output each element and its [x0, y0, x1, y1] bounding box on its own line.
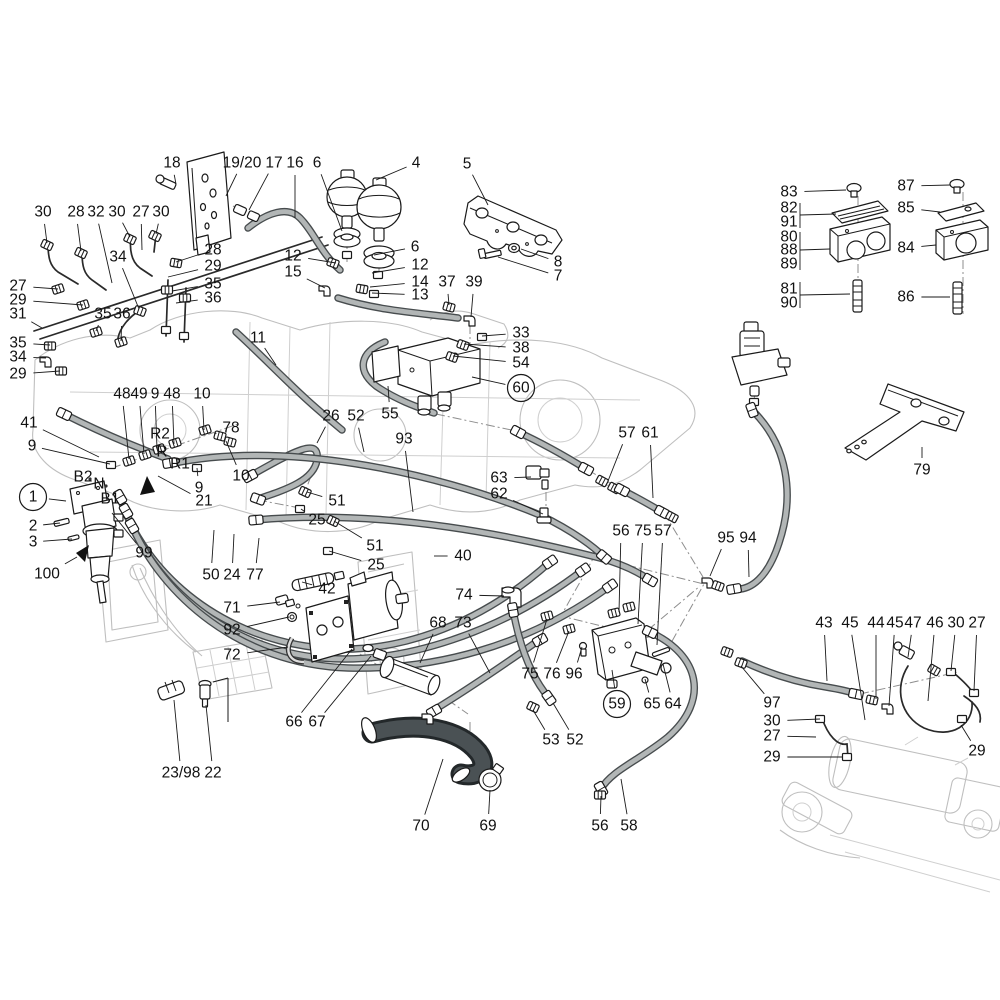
svg-text:35: 35 [94, 306, 111, 323]
callout-46: 46 [926, 615, 943, 702]
svg-text:R1: R1 [170, 456, 190, 473]
svg-text:25: 25 [367, 557, 384, 574]
callout-R: R [156, 444, 167, 461]
svg-text:57: 57 [618, 425, 635, 442]
callout-43: 43 [815, 615, 832, 682]
svg-text:77: 77 [246, 567, 263, 584]
fittings [40, 230, 979, 799]
svg-text:R2: R2 [150, 426, 170, 443]
svg-text:46: 46 [926, 615, 943, 632]
callout-94: 94 [739, 530, 757, 578]
fittings-17 [233, 204, 260, 222]
svg-text:28: 28 [67, 204, 84, 221]
svg-text:3: 3 [29, 534, 38, 551]
svg-text:65: 65 [643, 696, 660, 713]
svg-text:B2: B2 [74, 469, 93, 486]
svg-text:85: 85 [897, 200, 914, 217]
svg-text:86: 86 [897, 289, 914, 306]
callout-48: 48 [113, 386, 130, 460]
callout-4: 4 [376, 155, 421, 181]
callout-100: 100 [34, 557, 77, 583]
callout-30: 30 [108, 204, 130, 238]
svg-text:51: 51 [366, 538, 383, 555]
svg-text:57: 57 [654, 523, 671, 540]
svg-text:24: 24 [223, 567, 241, 584]
svg-text:49: 49 [130, 386, 147, 403]
svg-text:63: 63 [490, 470, 507, 487]
callout-71: 71 [223, 600, 280, 617]
svg-text:7: 7 [554, 268, 563, 285]
fitting-33 [478, 334, 487, 341]
svg-text:10: 10 [193, 386, 211, 403]
svg-text:39: 39 [465, 274, 482, 291]
hose-94 [734, 410, 787, 589]
callout-R2: R2 [150, 426, 170, 443]
svg-text:45: 45 [886, 615, 903, 632]
callout-56: 56 [591, 796, 608, 835]
svg-text:1: 1 [29, 489, 38, 506]
callout-27: 27 [763, 728, 816, 745]
callout-10: 10 [226, 441, 250, 485]
pin-3 [68, 535, 80, 542]
svg-text:90: 90 [780, 295, 798, 312]
svg-text:99: 99 [135, 545, 152, 562]
svg-text:37: 37 [438, 274, 455, 291]
svg-text:62: 62 [490, 486, 507, 503]
label-bracket-81-90 [800, 282, 850, 308]
flange-nut-6a [334, 228, 360, 247]
callout-65: 65 [643, 679, 660, 713]
svg-text:52: 52 [566, 732, 583, 749]
bleed-screw-96 [580, 643, 587, 657]
svg-text:27: 27 [968, 615, 985, 632]
svg-text:9: 9 [151, 386, 160, 403]
sensor-47 [894, 642, 915, 660]
nut-12a [343, 252, 352, 259]
svg-text:6: 6 [313, 155, 322, 172]
direction-arrow-lower [76, 545, 89, 562]
callout-85: 85 [897, 200, 940, 217]
svg-text:75: 75 [634, 523, 651, 540]
t-plate-79 [845, 384, 964, 460]
svg-text:12: 12 [411, 257, 428, 274]
callout-89: 89 [780, 256, 797, 273]
svg-text:29: 29 [204, 258, 221, 275]
svg-text:100: 100 [34, 566, 60, 583]
svg-text:42: 42 [318, 581, 335, 598]
bolt-18 [156, 175, 177, 190]
callout-7: 7 [498, 257, 562, 285]
callout-90: 90 [780, 295, 798, 312]
svg-text:51: 51 [328, 493, 345, 510]
svg-text:15: 15 [284, 264, 301, 281]
svg-text:96: 96 [565, 666, 582, 683]
callout-83: 83 [780, 184, 846, 201]
parts-diagram-page: 1819/20171664587302832302730342829353627… [0, 0, 1000, 1000]
callout-22: 22 [204, 705, 221, 782]
label-bracket-82-91 [800, 203, 836, 228]
svg-text:55: 55 [381, 406, 398, 423]
svg-text:76: 76 [543, 666, 560, 683]
pin-2 [54, 518, 70, 526]
svg-text:29: 29 [763, 749, 780, 766]
svg-text:4: 4 [412, 155, 421, 172]
callout-15: 15 [284, 264, 325, 289]
svg-text:94: 94 [739, 530, 757, 547]
svg-text:84: 84 [897, 240, 915, 257]
callout-R1: R1 [170, 456, 190, 473]
svg-text:2: 2 [29, 518, 38, 535]
svg-text:22: 22 [204, 765, 221, 782]
svg-text:17: 17 [265, 155, 282, 172]
svg-text:67: 67 [308, 714, 325, 731]
stud-86 [953, 282, 962, 314]
svg-text:52: 52 [347, 408, 364, 425]
svg-text:B1: B1 [101, 491, 120, 508]
callout-57: 57 [608, 425, 636, 482]
svg-text:87: 87 [897, 178, 914, 195]
rear-axle-outline [780, 734, 1000, 892]
callout-53: 53 [533, 710, 560, 749]
callout-29: 29 [763, 749, 843, 766]
callout-31: 31 [9, 306, 42, 329]
svg-text:30: 30 [34, 204, 52, 221]
flange-nut-6b [364, 246, 394, 268]
callout-73: 73 [454, 615, 490, 674]
svg-text:30: 30 [152, 204, 170, 221]
svg-text:31: 31 [9, 306, 26, 323]
callout-29: 29 [961, 725, 986, 760]
suction-hose-70 [359, 716, 483, 785]
washer-8 [509, 244, 520, 253]
callout-9: 9 [28, 438, 110, 465]
svg-text:97: 97 [763, 695, 780, 712]
callout-51: 51 [334, 521, 384, 555]
nut-13 [370, 291, 379, 298]
svg-text:53: 53 [542, 732, 559, 749]
svg-text:6: 6 [411, 239, 420, 256]
svg-text:95: 95 [717, 530, 734, 547]
svg-text:29: 29 [968, 743, 985, 760]
hose-37-section [338, 298, 458, 318]
svg-text:9: 9 [28, 438, 37, 455]
callout-39: 39 [465, 274, 482, 318]
svg-text:45: 45 [841, 615, 858, 632]
svg-text:16: 16 [286, 155, 303, 172]
fitting [326, 257, 339, 268]
direction-arrow-upper [140, 476, 155, 495]
svg-text:75: 75 [521, 666, 538, 683]
svg-text:40: 40 [454, 548, 472, 565]
callout-96: 96 [565, 647, 582, 683]
svg-text:70: 70 [412, 818, 430, 835]
callout-50: 50 [202, 530, 220, 584]
stud-81-90 [853, 280, 862, 312]
callout-63: 63 [490, 470, 531, 487]
solenoid-valve [732, 322, 790, 406]
callout-70: 70 [412, 759, 443, 835]
svg-text:93: 93 [395, 431, 412, 448]
svg-text:69: 69 [479, 818, 496, 835]
svg-text:66: 66 [285, 714, 302, 731]
callout-10: 10 [193, 386, 211, 431]
svg-text:89: 89 [780, 256, 797, 273]
svg-text:60: 60 [512, 380, 530, 397]
svg-text:41: 41 [20, 415, 37, 432]
callout-3: 3 [29, 534, 72, 551]
callout-44: 44 [867, 615, 885, 700]
callout-24: 24 [223, 534, 241, 584]
callout-30: 30 [152, 204, 170, 235]
svg-text:27: 27 [132, 204, 149, 221]
valve-block-59 [592, 602, 671, 688]
svg-text:72: 72 [223, 647, 240, 664]
bolt-7 [478, 248, 501, 258]
hose-43 [742, 661, 856, 694]
tee-14 [356, 284, 368, 294]
callout-87: 87 [897, 178, 950, 195]
elbow-39 [464, 316, 475, 326]
svg-text:58: 58 [620, 818, 637, 835]
svg-text:32: 32 [87, 204, 104, 221]
svg-text:26: 26 [322, 408, 339, 425]
svg-text:34: 34 [109, 249, 127, 266]
svg-text:48: 48 [113, 386, 130, 403]
callout-27: 27 [968, 615, 985, 692]
svg-text:5: 5 [463, 156, 472, 173]
callout-40: 40 [434, 548, 472, 565]
svg-text:36: 36 [204, 290, 221, 307]
pin-64 [652, 647, 670, 657]
callout-57: 57 [654, 523, 671, 646]
callout-B2: B2 [74, 469, 93, 486]
svg-text:74: 74 [455, 587, 473, 604]
svg-text:92: 92 [223, 622, 240, 639]
svg-text:29: 29 [9, 366, 26, 383]
callout-B1: B1 [101, 491, 120, 508]
svg-text:64: 64 [664, 696, 682, 713]
svg-text:61: 61 [641, 425, 658, 442]
svg-text:78: 78 [222, 420, 239, 437]
svg-text:21: 21 [195, 493, 212, 510]
callout-95: 95 [710, 530, 735, 577]
svg-text:34: 34 [9, 349, 27, 366]
svg-text:44: 44 [867, 615, 885, 632]
svg-text:47: 47 [904, 615, 921, 632]
svg-text:30: 30 [108, 204, 126, 221]
callout-30: 30 [947, 615, 965, 672]
callout-58: 58 [620, 779, 637, 835]
callout-69: 69 [479, 790, 496, 835]
svg-text:19/20: 19/20 [223, 155, 262, 172]
svg-text:30: 30 [947, 615, 965, 632]
svg-text:83: 83 [780, 184, 797, 201]
svg-text:R: R [156, 444, 167, 461]
fitting-23-98 [157, 680, 186, 701]
svg-text:12: 12 [284, 248, 301, 265]
hose-57-section [518, 432, 586, 469]
callout-23/98: 23/98 [162, 700, 201, 782]
svg-text:56: 56 [612, 523, 629, 540]
clamp-screw-83 [847, 184, 861, 198]
bleeder-22 [199, 681, 211, 708]
callout-79: 79 [913, 447, 930, 479]
svg-text:68: 68 [429, 615, 446, 632]
callout-34: 34 [109, 249, 139, 310]
callout-1: 1 [20, 484, 67, 511]
callout-19/20: 19/20 [223, 155, 262, 197]
callout-30: 30 [34, 204, 52, 244]
svg-text:73: 73 [454, 615, 471, 632]
svg-text:27: 27 [763, 728, 780, 745]
callout-27: 27 [132, 204, 149, 251]
svg-text:43: 43 [815, 615, 832, 632]
svg-text:23/98: 23/98 [162, 765, 201, 782]
pressure-switch-63 [526, 466, 549, 489]
svg-text:59: 59 [608, 696, 625, 713]
svg-text:79: 79 [913, 462, 930, 479]
clamp-cover-85 [938, 203, 984, 221]
svg-text:10: 10 [232, 468, 250, 485]
callout-37: 37 [438, 274, 455, 306]
clamp-71 [275, 595, 300, 608]
svg-text:54: 54 [512, 355, 530, 372]
svg-text:18: 18 [163, 155, 180, 172]
svg-text:71: 71 [223, 600, 240, 617]
clamp-block-80-88-89 [830, 217, 890, 262]
clamp-screw-87 [950, 180, 964, 194]
svg-text:25: 25 [308, 512, 325, 529]
exploded-parts-diagram: 1819/20171664587302832302730342829353627… [0, 0, 1000, 1000]
label-bracket-80-88-89 [800, 232, 830, 270]
callout-84: 84 [897, 240, 936, 257]
svg-text:36: 36 [113, 306, 130, 323]
svg-text:13: 13 [411, 287, 428, 304]
svg-text:48: 48 [163, 386, 180, 403]
svg-text:56: 56 [591, 818, 608, 835]
svg-text:50: 50 [202, 567, 220, 584]
callout-28: 28 [67, 204, 84, 252]
callout-77: 77 [246, 538, 263, 584]
callout-45: 45 [841, 615, 865, 721]
callout-86: 86 [897, 289, 950, 306]
callout-21: 21 [158, 476, 213, 510]
svg-text:11: 11 [250, 330, 266, 347]
clamp-block-84 [936, 220, 988, 260]
callout-13: 13 [372, 287, 429, 304]
svg-text:28: 28 [204, 242, 221, 259]
